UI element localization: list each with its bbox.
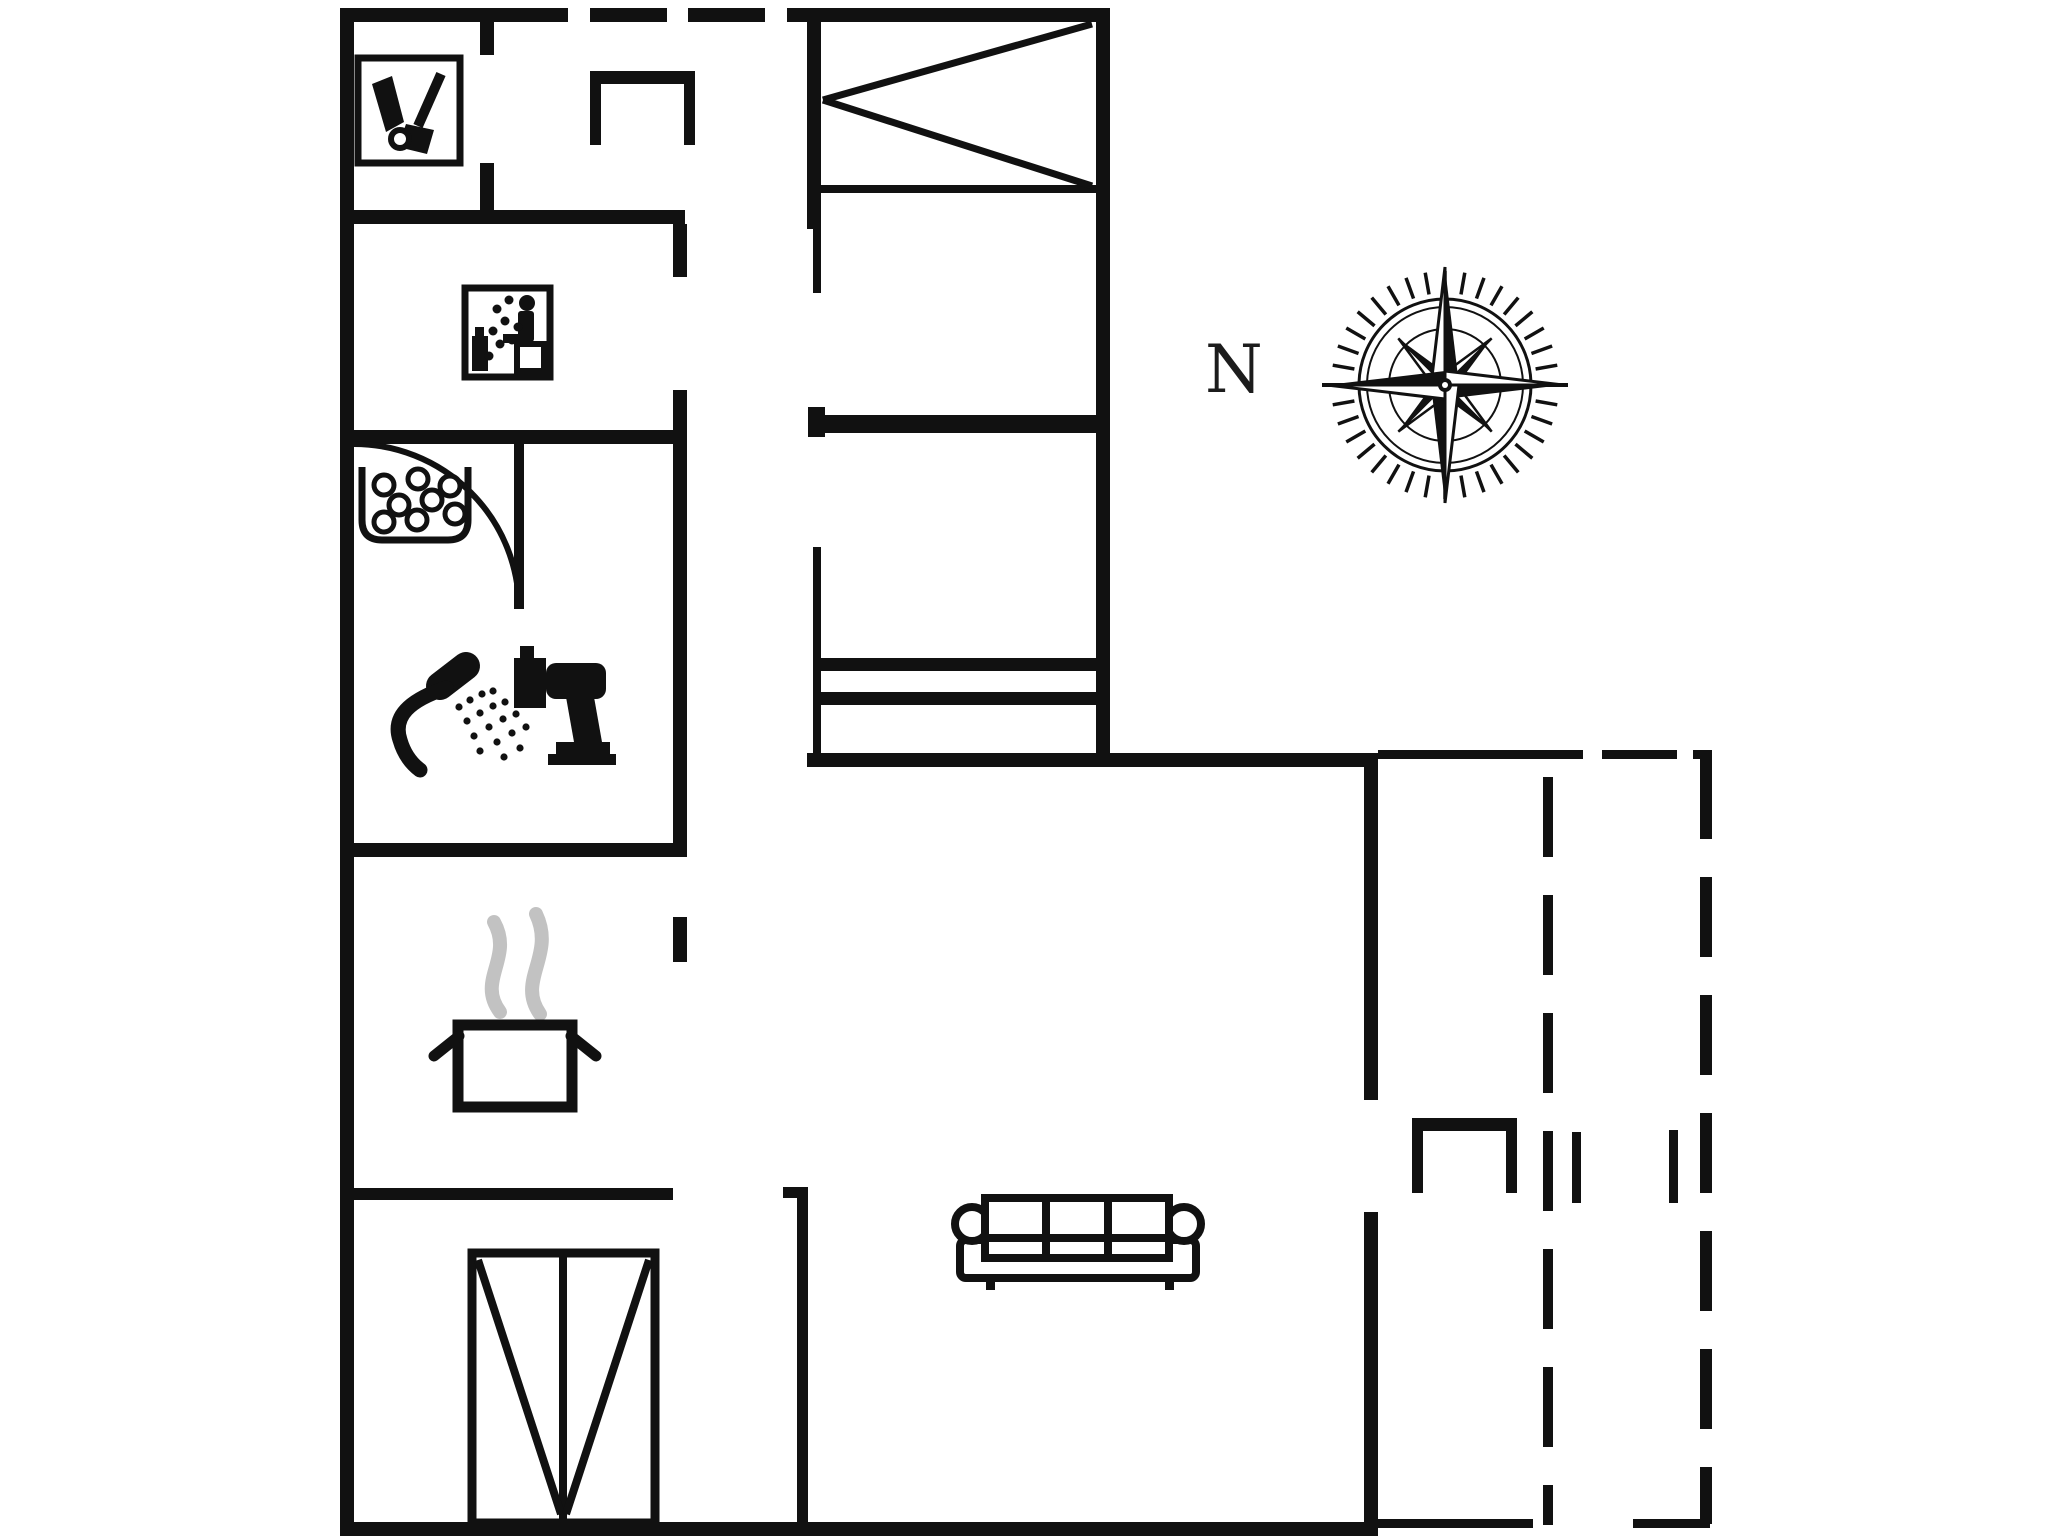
floor-plan-canvas: N — [0, 0, 2048, 1536]
wall-bathroom-bottom — [340, 843, 687, 857]
wall-bedrooms-bottom — [807, 753, 1378, 767]
wall-right-upper — [1364, 753, 1378, 1100]
terrace-outline — [1378, 750, 1712, 1528]
whirlpool-tub-icon — [362, 467, 468, 540]
wall-bedroom-divider — [813, 415, 1096, 433]
wall-hall-bottom — [340, 210, 685, 224]
wall-living-west — [797, 1187, 808, 1522]
closet-symbol — [590, 71, 695, 145]
entrance-door-dashes — [497, 8, 765, 22]
wall-left — [340, 8, 354, 1536]
cooking-pot-icon — [434, 1025, 596, 1107]
terrace-post — [1669, 1130, 1678, 1203]
wall-bedrooms-right — [1096, 8, 1110, 767]
wall-right-lower — [1364, 1212, 1378, 1536]
closet-symbol — [1412, 1118, 1517, 1193]
hand-shower-icon — [398, 666, 529, 770]
floor-plan-drawing: N — [0, 0, 2048, 1536]
spa-person-icon — [465, 288, 550, 377]
toilet-icon — [514, 646, 616, 765]
wall-top-utility — [340, 8, 497, 22]
compass-rose-icon — [1322, 267, 1568, 503]
wall-top-bedrooms — [787, 8, 1110, 22]
wardrobe-icon — [472, 1253, 655, 1523]
terrace-post — [1572, 1132, 1581, 1203]
north-label: N — [1205, 331, 1263, 408]
dashed-terrace-outline — [1378, 759, 1712, 1528]
steam-icon — [492, 914, 542, 1014]
double-bed-icon — [821, 24, 1096, 193]
wall-bathroom-top — [354, 430, 687, 444]
wall-kitchen-bottom — [340, 1188, 673, 1200]
sofa-icon — [955, 1198, 1201, 1290]
wall-bedrooms-left-thick — [807, 8, 821, 229]
wardrobe-bars-bedroom2 — [821, 658, 1096, 705]
cleaning-equipment-icon — [358, 58, 460, 163]
